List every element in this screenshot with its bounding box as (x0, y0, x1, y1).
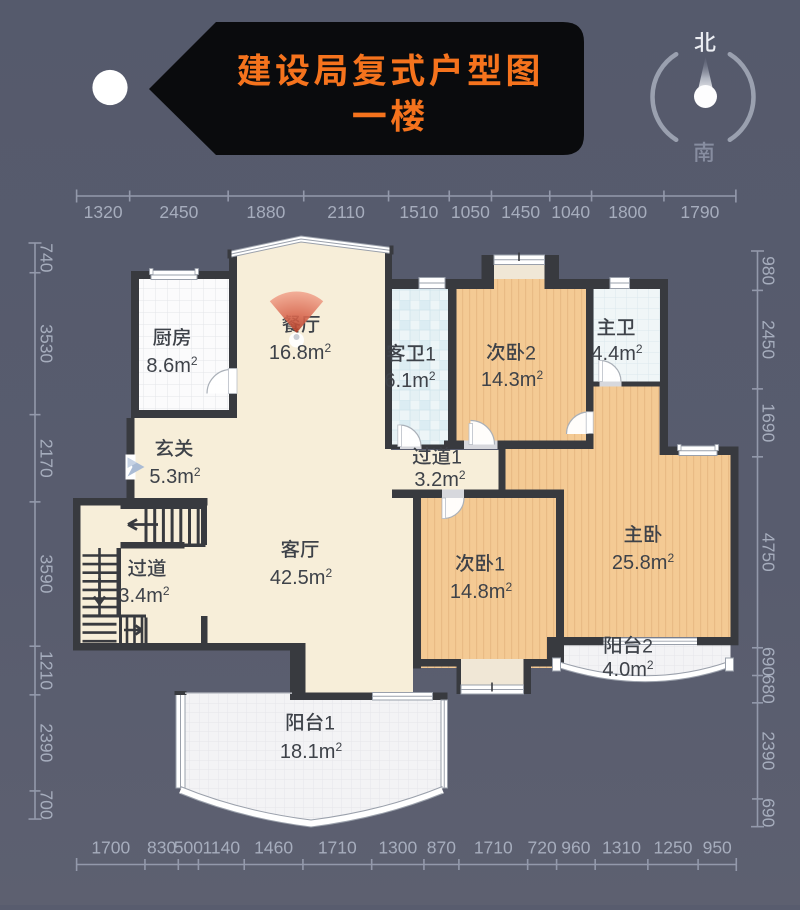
svg-text:1710: 1710 (318, 838, 357, 858)
svg-text:4750: 4750 (759, 533, 779, 572)
svg-text:1040: 1040 (551, 202, 590, 222)
svg-text:2170: 2170 (37, 439, 57, 478)
svg-text:1250: 1250 (654, 838, 693, 858)
svg-text:14.3m2: 14.3m2 (481, 368, 544, 391)
svg-text:1700: 1700 (91, 838, 130, 858)
svg-text:1510: 1510 (399, 202, 438, 222)
svg-text:2450: 2450 (159, 202, 198, 222)
svg-text:3530: 3530 (37, 324, 57, 363)
svg-text:1300: 1300 (378, 838, 417, 858)
svg-text:740: 740 (37, 243, 57, 272)
svg-text:1790: 1790 (680, 202, 719, 222)
svg-text:1210: 1210 (37, 651, 57, 690)
svg-text:1690: 1690 (759, 403, 779, 442)
svg-text:4.4m2: 4.4m2 (591, 342, 642, 365)
svg-text:2390: 2390 (37, 723, 57, 762)
svg-text:6.1m2: 6.1m2 (384, 369, 435, 392)
svg-text:2390: 2390 (759, 731, 779, 770)
svg-text:14.8m2: 14.8m2 (450, 580, 513, 603)
svg-text:1450: 1450 (501, 202, 540, 222)
svg-text:2110: 2110 (327, 202, 365, 222)
svg-text:42.5m2: 42.5m2 (270, 566, 333, 589)
svg-text:830: 830 (147, 838, 176, 858)
svg-text:3590: 3590 (37, 555, 57, 594)
svg-text:700: 700 (37, 790, 57, 819)
svg-text:1460: 1460 (254, 838, 293, 858)
svg-text:1: 1 (425, 343, 436, 365)
svg-text:1050: 1050 (451, 202, 490, 222)
svg-text:1: 1 (451, 446, 462, 468)
svg-text:18.1m2: 18.1m2 (280, 740, 343, 763)
svg-text:680: 680 (759, 675, 779, 704)
svg-text:1140: 1140 (202, 838, 240, 858)
svg-text:2: 2 (642, 635, 653, 657)
svg-text:1320: 1320 (84, 202, 123, 222)
svg-text:500: 500 (174, 838, 203, 858)
svg-text:16.8m2: 16.8m2 (269, 341, 332, 364)
svg-text:8.6m2: 8.6m2 (146, 354, 197, 377)
svg-text:5.3m2: 5.3m2 (149, 465, 200, 488)
svg-text:960: 960 (561, 838, 590, 858)
svg-text:1880: 1880 (246, 202, 285, 222)
svg-text:980: 980 (759, 256, 779, 285)
svg-text:2450: 2450 (759, 320, 779, 359)
svg-text:1: 1 (494, 553, 505, 575)
svg-text:1800: 1800 (608, 202, 647, 222)
svg-text:950: 950 (703, 838, 732, 858)
svg-text:3.4m2: 3.4m2 (118, 584, 169, 607)
svg-text:1: 1 (324, 712, 335, 734)
svg-text:2: 2 (525, 342, 536, 364)
svg-text:720: 720 (527, 838, 556, 858)
svg-text:870: 870 (427, 838, 456, 858)
svg-text:1310: 1310 (602, 838, 641, 858)
svg-text:3.2m2: 3.2m2 (414, 468, 465, 491)
svg-text:4.0m2: 4.0m2 (602, 658, 653, 681)
svg-text:690: 690 (759, 798, 779, 827)
svg-text:1710: 1710 (474, 838, 513, 858)
svg-text:690: 690 (759, 647, 779, 676)
svg-text:25.8m2: 25.8m2 (612, 551, 675, 574)
